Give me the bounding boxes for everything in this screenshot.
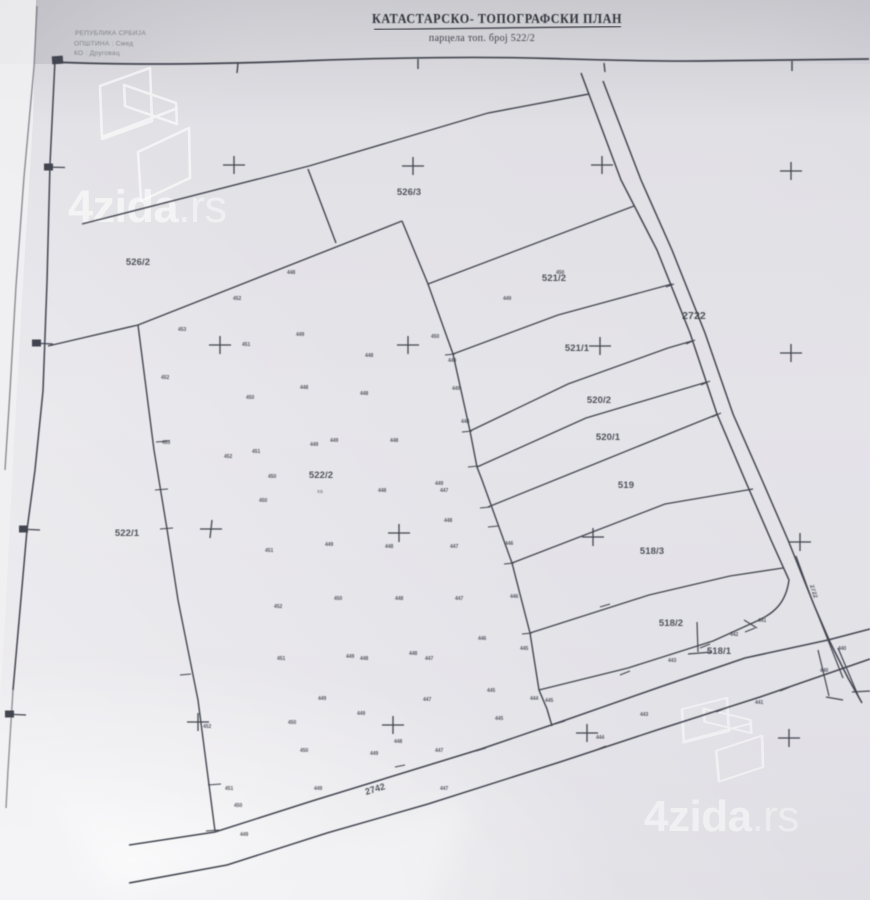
svg-text:449: 449 bbox=[296, 332, 305, 338]
svg-text:446: 446 bbox=[478, 636, 487, 642]
svg-text:452: 452 bbox=[203, 724, 212, 730]
svg-text:448: 448 bbox=[394, 739, 403, 745]
svg-text:447: 447 bbox=[440, 786, 449, 792]
svg-text:451: 451 bbox=[242, 342, 251, 348]
svg-text:РЕПУБЛИКА СРБИЈА: РЕПУБЛИКА СРБИЈА bbox=[75, 30, 146, 37]
svg-text:444: 444 bbox=[596, 735, 605, 741]
svg-text:448: 448 bbox=[461, 419, 470, 425]
svg-text:449: 449 bbox=[357, 711, 366, 717]
svg-text:448: 448 bbox=[287, 270, 296, 276]
svg-text:451: 451 bbox=[252, 449, 261, 455]
svg-text:450: 450 bbox=[556, 270, 565, 276]
svg-text:443: 443 bbox=[668, 658, 677, 664]
svg-text:449: 449 bbox=[314, 786, 323, 792]
svg-text:447: 447 bbox=[425, 656, 434, 662]
svg-text:449: 449 bbox=[330, 438, 339, 444]
svg-text:448: 448 bbox=[395, 596, 404, 602]
svg-text:448: 448 bbox=[360, 656, 369, 662]
svg-text:4zida.rs: 4zida.rs bbox=[68, 181, 227, 232]
svg-text:451: 451 bbox=[225, 786, 234, 792]
svg-text:449: 449 bbox=[310, 442, 319, 448]
svg-text:441: 441 bbox=[758, 618, 767, 624]
svg-text:448: 448 bbox=[378, 488, 387, 494]
svg-text:452: 452 bbox=[161, 375, 170, 381]
svg-text:448: 448 bbox=[385, 544, 394, 550]
svg-text:452: 452 bbox=[233, 296, 242, 302]
svg-text:450: 450 bbox=[234, 803, 243, 809]
svg-text:453: 453 bbox=[162, 440, 171, 446]
svg-text:445: 445 bbox=[520, 646, 529, 652]
svg-text:449: 449 bbox=[325, 542, 334, 548]
svg-text:518/3: 518/3 bbox=[640, 546, 664, 557]
svg-text:447: 447 bbox=[435, 748, 444, 754]
svg-text:450: 450 bbox=[431, 334, 440, 340]
svg-text:449: 449 bbox=[346, 654, 355, 660]
svg-text:445: 445 bbox=[545, 698, 554, 704]
svg-text:451: 451 bbox=[265, 548, 274, 554]
svg-text:522/2: 522/2 bbox=[309, 470, 333, 481]
svg-text:2722: 2722 bbox=[682, 310, 706, 322]
svg-text:448: 448 bbox=[444, 518, 453, 524]
svg-text:450: 450 bbox=[246, 395, 255, 401]
svg-text:446: 446 bbox=[505, 541, 514, 547]
svg-text:448: 448 bbox=[409, 651, 418, 657]
svg-text:519: 519 bbox=[618, 480, 634, 491]
svg-text:520/2: 520/2 bbox=[587, 395, 611, 406]
svg-text:447: 447 bbox=[450, 544, 459, 550]
svg-text:449: 449 bbox=[452, 386, 461, 392]
svg-text:447: 447 bbox=[423, 697, 432, 703]
svg-text:448: 448 bbox=[300, 385, 309, 391]
svg-text:446: 446 bbox=[510, 594, 519, 600]
svg-text:ха: ха bbox=[317, 489, 324, 495]
svg-text:449: 449 bbox=[240, 832, 249, 838]
svg-text:452: 452 bbox=[274, 604, 283, 610]
svg-text:450: 450 bbox=[268, 474, 277, 480]
svg-text:447: 447 bbox=[455, 596, 464, 602]
svg-text:453: 453 bbox=[178, 327, 187, 333]
svg-text:518/2: 518/2 bbox=[659, 618, 683, 629]
svg-text:448: 448 bbox=[360, 391, 369, 397]
svg-text:452: 452 bbox=[224, 454, 233, 460]
svg-text:449: 449 bbox=[448, 358, 457, 364]
svg-text:449: 449 bbox=[435, 481, 444, 487]
svg-text:526/2: 526/2 bbox=[126, 257, 150, 268]
svg-text:440: 440 bbox=[820, 668, 829, 674]
svg-text:450: 450 bbox=[334, 596, 343, 602]
svg-text:440: 440 bbox=[838, 646, 847, 652]
svg-text:444: 444 bbox=[530, 696, 539, 702]
svg-text:441: 441 bbox=[755, 700, 764, 706]
svg-text:4zida.rs: 4zida.rs bbox=[644, 792, 799, 841]
svg-text:450: 450 bbox=[288, 720, 297, 726]
svg-text:443: 443 bbox=[640, 712, 649, 718]
svg-text:526/3: 526/3 bbox=[397, 187, 421, 198]
svg-text:522/1: 522/1 bbox=[115, 528, 140, 539]
svg-text:449: 449 bbox=[318, 696, 327, 702]
svg-text:447: 447 bbox=[440, 488, 449, 494]
svg-text:521/1: 521/1 bbox=[565, 343, 590, 354]
svg-text:445: 445 bbox=[495, 716, 504, 722]
svg-text:449: 449 bbox=[503, 296, 512, 302]
svg-text:КАТАСТАРСКО- ТОПОГРАФСКИ ПЛАН: КАТАСТАРСКО- ТОПОГРАФСКИ ПЛАН bbox=[372, 11, 622, 26]
svg-text:448: 448 bbox=[365, 353, 374, 359]
svg-text:442: 442 bbox=[730, 632, 739, 638]
svg-text:КО : Друговац: КО : Друговац bbox=[74, 50, 120, 57]
svg-text:449: 449 bbox=[370, 751, 379, 757]
svg-text:ОПШТИНА : Смед: ОПШТИНА : Смед bbox=[74, 41, 133, 48]
svg-text:445: 445 bbox=[487, 688, 496, 694]
svg-text:парцела топ. број 522/2: парцела топ. број 522/2 bbox=[429, 33, 535, 44]
svg-text:520/1: 520/1 bbox=[596, 432, 621, 443]
svg-text:448: 448 bbox=[390, 438, 399, 444]
svg-text:450: 450 bbox=[300, 748, 309, 754]
svg-text:450: 450 bbox=[259, 498, 268, 504]
svg-text:451: 451 bbox=[277, 656, 286, 662]
svg-text:518/1: 518/1 bbox=[707, 646, 732, 657]
